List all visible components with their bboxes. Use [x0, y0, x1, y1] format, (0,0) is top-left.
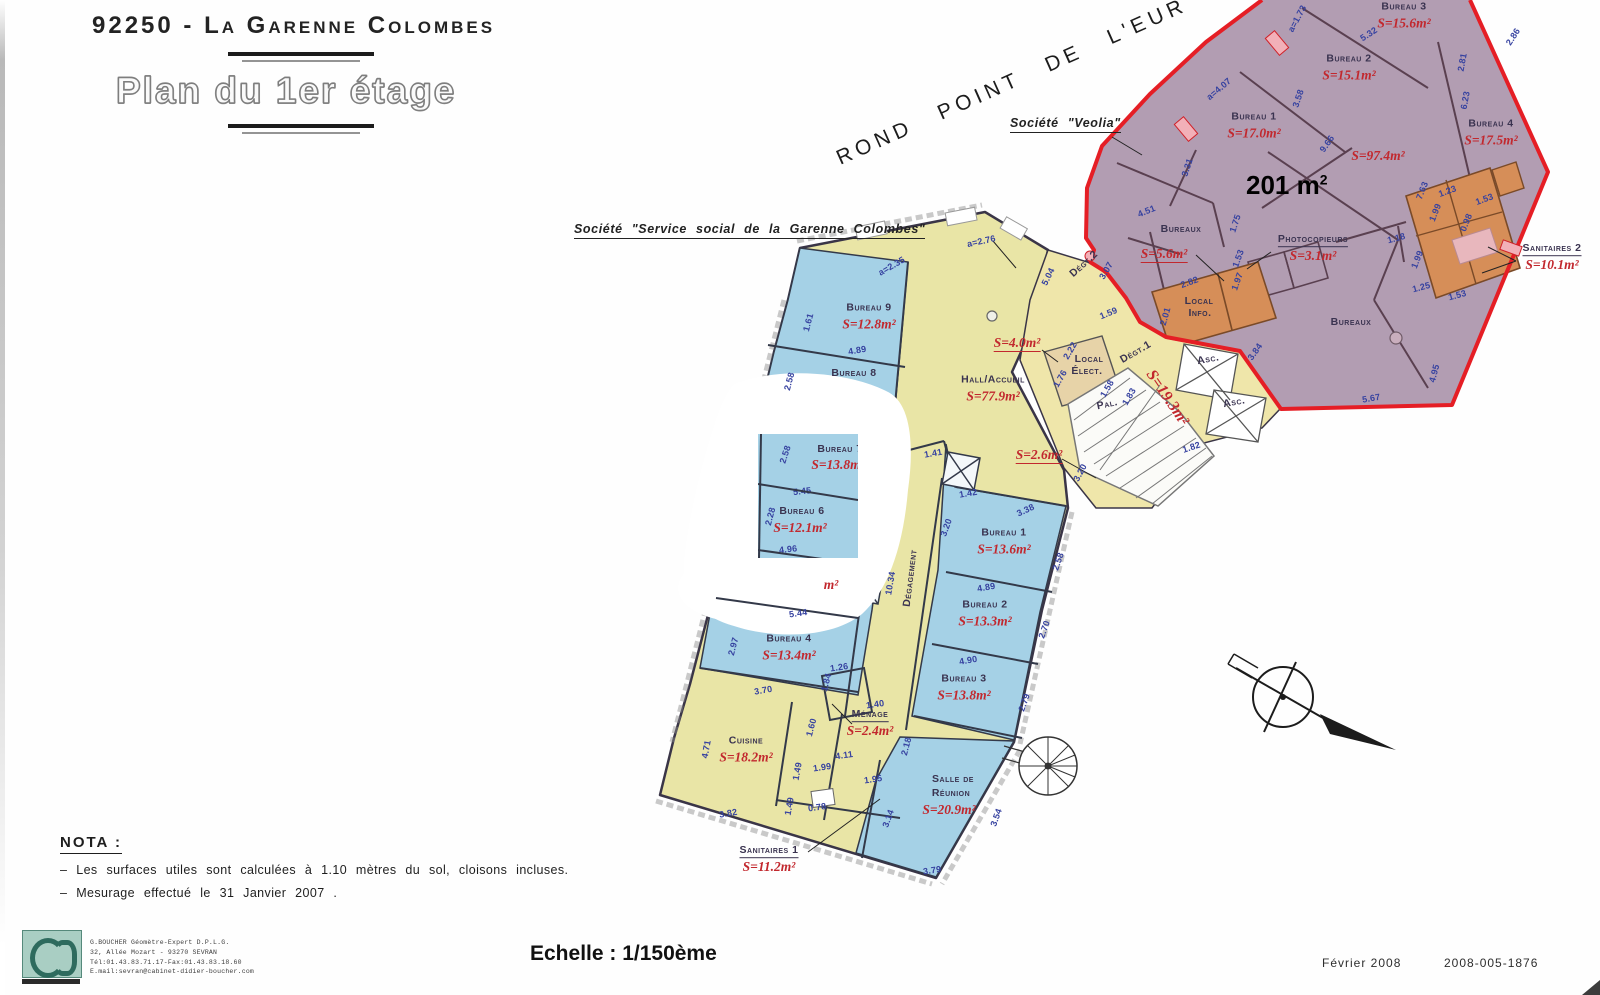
big-area-sup: 2: [1320, 171, 1328, 187]
surveyor-stamp: G.BOUCHER Géomètre-Expert D.P.L.G. 32, A…: [22, 930, 254, 984]
door-gap: [811, 789, 835, 808]
surveyor-line: G.BOUCHER Géomètre-Expert D.P.L.G.: [90, 938, 254, 948]
nota-line: – Les surfaces utiles sont calculées à 1…: [60, 863, 568, 877]
title-rule-thick: [228, 52, 374, 56]
societe-service-callout: Société "Service social de la Garenne Co…: [574, 222, 925, 239]
floor-plan-page: Bureau 7S=13.8m²5.45Bureau 6S=12.1m²4.96…: [0, 0, 1600, 995]
surveyor-line: 32, Allée Mozart - 93270 SEVRAN: [90, 948, 254, 958]
footer-date: Février 2008: [1322, 956, 1401, 970]
societe-veolia-callout: Société "Veolia": [1010, 116, 1121, 133]
plan-title: Plan du 1er étage: [116, 70, 456, 112]
column-symbol: [1390, 332, 1402, 344]
nota-line: – Mesurage effectué le 31 Janvier 2007 .: [60, 886, 568, 900]
surveyor-line: Tél:01.43.83.71.17-Fax:01.43.83.18.60: [90, 958, 254, 968]
surveyor-line: E.mail:sevran@cabinet-didier-boucher.com: [90, 967, 254, 977]
nota-title: NOTA :: [60, 834, 122, 854]
footer-reference: 2008-005-1876: [1444, 956, 1538, 970]
title-rule-thin: [242, 132, 360, 134]
redaction-blob-window: Bureau 7S=13.8m²5.45Bureau 6S=12.1m²4.96…: [758, 434, 858, 558]
big-area-value: 201 m: [1246, 170, 1320, 200]
north-arrow-icon: [1228, 654, 1396, 750]
column-symbol: [987, 311, 997, 321]
title-rule-thick: [228, 124, 374, 128]
highlighted-area-201: 201 m2: [1246, 170, 1328, 201]
page-title: 92250 - La Garenne Colombes: [92, 12, 495, 40]
scale-label: Echelle : 1/150ème: [530, 942, 717, 966]
nota-block: NOTA : – Les surfaces utiles sont calcul…: [60, 834, 568, 900]
surveyor-logo-bar: [22, 979, 80, 984]
surveyor-logo: [22, 930, 82, 978]
title-rule-thin: [242, 60, 360, 62]
